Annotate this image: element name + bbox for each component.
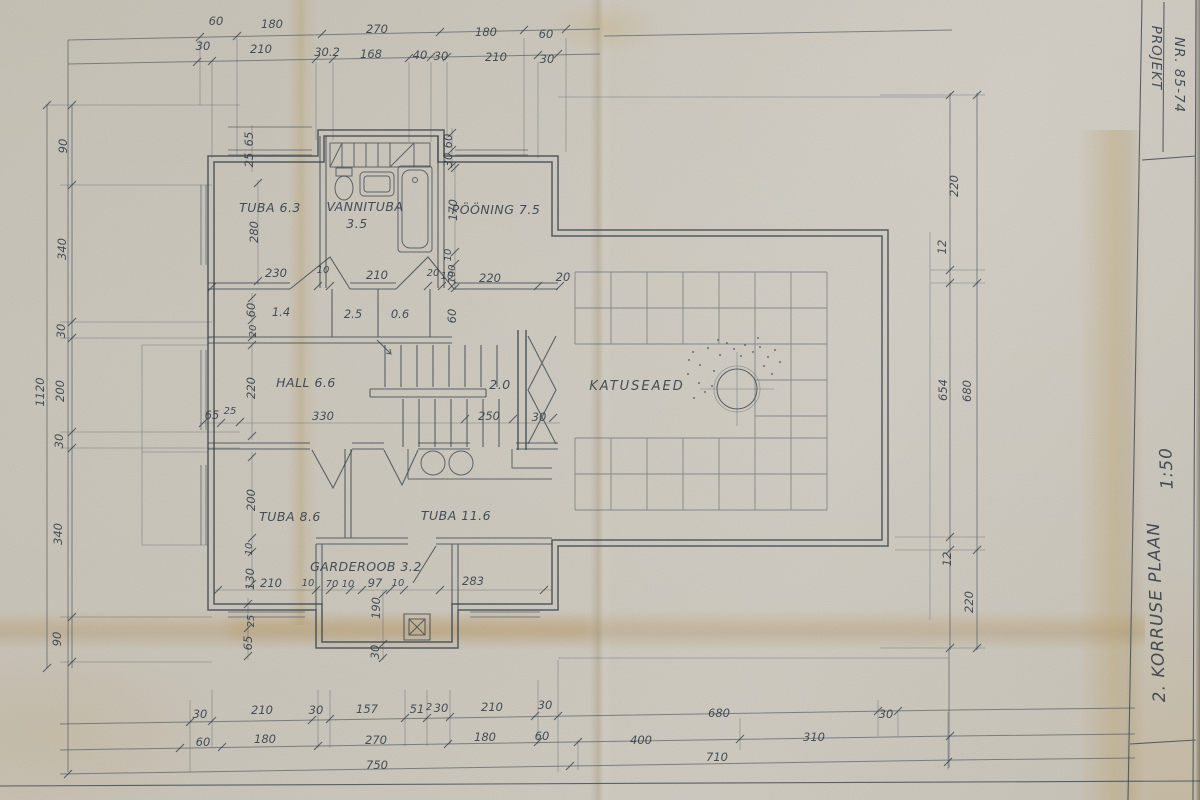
- scanned-floorplan-sheet: 60 180 270 180 60 30 210 30.2 168 40 30 …: [0, 0, 1200, 800]
- floor-plan-drawing: 60 180 270 180 60 30 210 30.2 168 40 30 …: [0, 0, 1200, 800]
- paper-grain-overlay: [0, 0, 1200, 800]
